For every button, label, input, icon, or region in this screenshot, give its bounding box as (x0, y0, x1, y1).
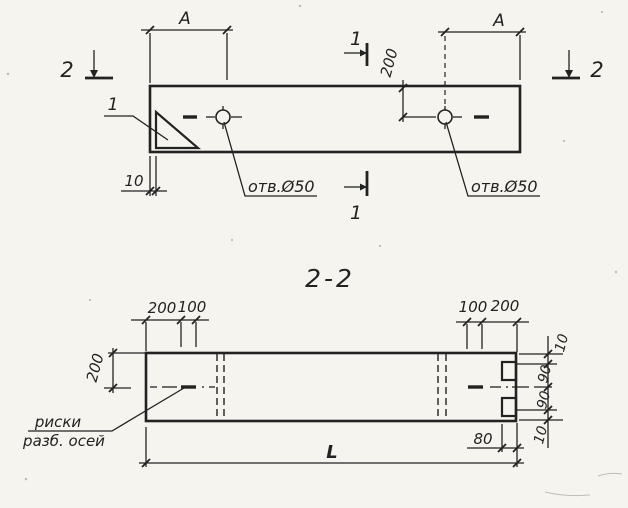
corner-mark-leader (104, 116, 168, 140)
dim-left-200-value: 200 (83, 352, 108, 384)
axis-marks-label-line2: разб. осей (22, 432, 105, 450)
axis-marks-label-line1: риски (34, 413, 82, 431)
section-title: 2-2 (305, 264, 355, 293)
technical-drawing: 1 2 2 1 1 (0, 0, 628, 508)
dim-hole-offset-200-value: 200 (377, 47, 402, 79)
dim-right-10-top-value: 10 (552, 332, 572, 353)
dim-top-left-group (131, 316, 209, 351)
plan-view: 1 2 2 1 1 (60, 9, 603, 224)
notch-bottom-icon (502, 398, 516, 416)
dim-notch-80-value: 80 (473, 430, 492, 448)
hole-label-left: отв.Ø50 (248, 177, 315, 196)
section-view: 2-2 риски разб. ос (22, 264, 572, 467)
section-cut-2-left-label: 2 (60, 58, 73, 82)
section-beam-outline (146, 353, 516, 421)
section-cut-1-bottom-icon (344, 171, 367, 196)
section-cut-2-right-label: 2 (590, 58, 603, 82)
dim-left-200-group (104, 348, 147, 393)
dim-top-right-200-value: 200 (491, 297, 520, 315)
dim-top-right-group (456, 318, 529, 352)
dim-top-right-100-value: 100 (459, 298, 488, 316)
hole-left-icon (206, 106, 242, 129)
dim-a-left-value: A (178, 9, 191, 29)
plan-beam-outline (150, 86, 520, 152)
section-cut-1-bottom-label: 1 (350, 202, 362, 224)
section-cut-1-top-label: 1 (350, 28, 362, 50)
section-cut-2-right-icon (552, 50, 580, 78)
dim-top-left-100-value: 100 (178, 298, 207, 316)
dim-a-left (141, 26, 233, 83)
section-cut-2-left-icon (85, 50, 113, 78)
dim-right-90-top-value: 90 (535, 363, 555, 384)
dim-a-right-value: A (492, 11, 505, 31)
corner-mark-callout-label: 1 (108, 95, 119, 115)
notch-top-icon (502, 362, 516, 380)
blueprint-sheet: 1 2 2 1 1 (0, 0, 628, 508)
hidden-hole-left-lines (217, 354, 224, 420)
hole-label-right: отв.Ø50 (471, 177, 538, 196)
hidden-hole-right-lines (438, 354, 446, 420)
dim-corner-mark-10-value: 10 (124, 172, 143, 190)
hole-right-icon (438, 106, 462, 129)
dim-a-right (438, 28, 526, 110)
dim-top-left-200-value: 200 (148, 299, 177, 317)
dim-length-value: L (326, 442, 337, 463)
